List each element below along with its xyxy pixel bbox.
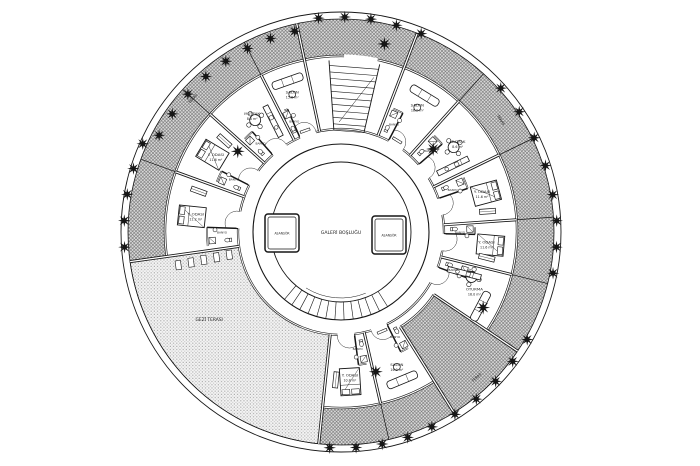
room-area-label: 11.6 m² bbox=[476, 195, 490, 199]
planter-box bbox=[175, 260, 182, 270]
room-area-label: 16.0 m² bbox=[468, 292, 482, 296]
tree-icon bbox=[220, 55, 233, 68]
tree-icon bbox=[264, 32, 277, 45]
room-area-label: 16.0 m² bbox=[390, 368, 404, 372]
bath-label: BANYO bbox=[353, 347, 364, 351]
pillow bbox=[342, 389, 350, 394]
tree-icon bbox=[539, 159, 552, 172]
bath-label: BANYO bbox=[389, 122, 400, 126]
room-name-label: MUTFAK bbox=[450, 139, 466, 144]
tree-icon bbox=[528, 131, 541, 144]
room-area-label: 10.8 m² bbox=[343, 379, 357, 383]
tree-icon bbox=[376, 438, 389, 451]
floor-plan-image: ASANSÖRASANSÖRGALERİ BOŞLUĞUGEZİ TERASIT… bbox=[0, 0, 700, 466]
room-area-label: 11.6 m² bbox=[209, 158, 223, 162]
door-opening bbox=[442, 234, 444, 251]
planter-box bbox=[213, 253, 220, 263]
bath-label: BANYO bbox=[455, 230, 466, 234]
tree-icon bbox=[513, 105, 526, 118]
sink-icon bbox=[291, 113, 295, 117]
bath-label: BANYO bbox=[424, 149, 435, 153]
tree-icon bbox=[118, 214, 131, 227]
pillow bbox=[498, 237, 504, 245]
room-area-label: 11.6 m² bbox=[480, 246, 494, 250]
toilet-tank bbox=[359, 340, 363, 343]
atrium-label: GALERİ BOŞLUĞU bbox=[321, 229, 361, 236]
planter-rect bbox=[226, 250, 233, 260]
bath-label: BANYO bbox=[256, 141, 267, 145]
toilet-icon bbox=[225, 238, 232, 242]
tree-icon bbox=[550, 241, 563, 254]
door-opening bbox=[337, 334, 354, 335]
tree-icon bbox=[365, 13, 378, 26]
tree-icon bbox=[200, 70, 213, 83]
sink-icon bbox=[394, 343, 398, 347]
room-name-label: SALON bbox=[286, 89, 299, 94]
floor-plan-canvas: ASANSÖRASANSÖRGALERİ BOŞLUĞUGEZİ TERASIT… bbox=[0, 0, 700, 466]
sink-icon bbox=[256, 135, 260, 139]
room-area-label: 16.2 m² bbox=[411, 109, 425, 113]
promenade-terrace-label: GEZİ TERASI bbox=[196, 316, 223, 323]
room-area-label: 15.8 m² bbox=[286, 95, 300, 99]
room-name-label: Y. ODASI bbox=[188, 212, 204, 217]
sink-icon bbox=[465, 234, 469, 238]
planter-rect bbox=[213, 253, 220, 263]
tree-icon bbox=[153, 129, 166, 142]
tree-icon bbox=[521, 333, 534, 346]
room-name-label: SALON bbox=[390, 362, 403, 367]
tree-icon bbox=[550, 214, 563, 227]
pillow bbox=[179, 206, 185, 214]
room-area-label: 8.6 m² bbox=[452, 145, 464, 149]
tree-icon bbox=[166, 108, 179, 121]
room-name-label: OTURMA bbox=[466, 286, 483, 291]
tree-icon bbox=[401, 431, 414, 444]
shower-icon bbox=[209, 237, 216, 244]
bath-label: BANYO bbox=[289, 120, 300, 124]
pillow bbox=[497, 247, 503, 255]
planter-rect bbox=[175, 260, 182, 270]
tree-icon bbox=[323, 441, 336, 454]
shower-icon bbox=[360, 355, 367, 362]
room-name-label: SALON bbox=[411, 103, 424, 108]
tree-icon bbox=[390, 19, 403, 32]
elevator-label: ASANSÖR bbox=[274, 230, 290, 235]
bath-label: BANYO bbox=[229, 177, 240, 181]
tree-icon bbox=[377, 37, 391, 51]
tree-icon bbox=[449, 408, 462, 421]
tree-icon bbox=[546, 188, 559, 201]
bath-label: BANYO bbox=[448, 188, 459, 192]
planter-box bbox=[226, 250, 233, 260]
tree-icon bbox=[547, 267, 560, 280]
planter-rect bbox=[201, 255, 208, 265]
tree-icon bbox=[127, 162, 140, 175]
tree-icon bbox=[350, 441, 363, 454]
sink-icon bbox=[227, 173, 231, 177]
shower-icon bbox=[467, 226, 474, 233]
planter-box bbox=[188, 258, 195, 268]
tree-icon bbox=[476, 301, 490, 315]
toilet-tank bbox=[230, 238, 232, 242]
tree-icon bbox=[288, 25, 301, 38]
bath-label: BANYO bbox=[448, 268, 459, 272]
pillow bbox=[178, 216, 184, 224]
elevator-label: ASANSÖR bbox=[381, 232, 397, 237]
pillow bbox=[352, 389, 360, 394]
tree-icon bbox=[118, 241, 131, 254]
room-area-label: 11.2 m² bbox=[189, 218, 203, 222]
tree-icon bbox=[231, 144, 245, 158]
room-name-label: Y. ODASI bbox=[342, 373, 358, 378]
planter-box bbox=[201, 255, 208, 265]
tree-icon bbox=[470, 393, 483, 406]
planter-rect bbox=[188, 258, 195, 268]
sink-icon bbox=[354, 355, 358, 359]
tree-icon bbox=[121, 188, 134, 201]
wardrobe-icon bbox=[479, 208, 495, 214]
tree-icon bbox=[136, 137, 149, 150]
tree-icon bbox=[506, 355, 519, 368]
sink-icon bbox=[458, 189, 462, 193]
tree-icon bbox=[494, 82, 507, 95]
bath-label: BANYO bbox=[217, 230, 228, 234]
tree-icon bbox=[312, 12, 325, 25]
room-name-label: Y. ODASI bbox=[478, 240, 494, 245]
tree-icon bbox=[426, 421, 439, 434]
toilet-tank bbox=[451, 227, 453, 230]
tree-icon bbox=[241, 42, 254, 55]
tree-icon bbox=[415, 27, 428, 40]
room-area-label: 8.6 m² bbox=[247, 117, 259, 121]
bath-label: BANYO bbox=[390, 335, 401, 339]
tree-icon bbox=[489, 375, 502, 388]
door-opening bbox=[238, 211, 240, 228]
room-name-label: MUTFAK bbox=[244, 111, 260, 116]
tree-icon bbox=[338, 11, 351, 24]
room-name-label: Y. ODASI bbox=[474, 189, 490, 194]
tree-icon bbox=[369, 365, 383, 379]
room-name-label: Y. ODASI bbox=[208, 152, 224, 157]
toilet-bowl bbox=[225, 238, 230, 242]
